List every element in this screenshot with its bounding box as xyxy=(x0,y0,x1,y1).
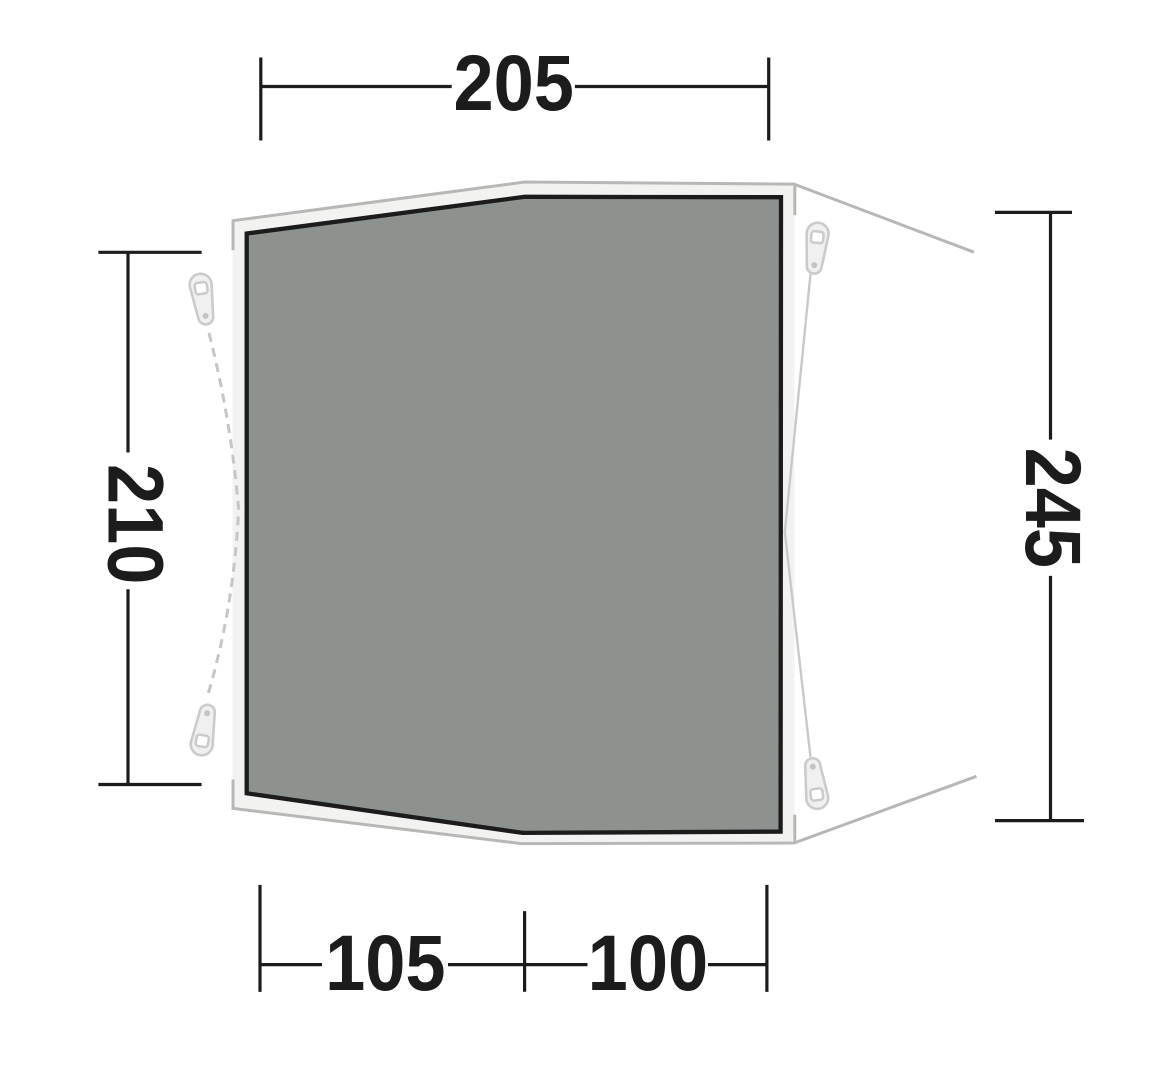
svg-text:245: 245 xyxy=(1009,448,1096,568)
svg-text:100: 100 xyxy=(588,919,708,1006)
svg-text:210: 210 xyxy=(92,464,179,584)
svg-text:105: 105 xyxy=(325,919,445,1006)
svg-text:205: 205 xyxy=(453,39,573,126)
